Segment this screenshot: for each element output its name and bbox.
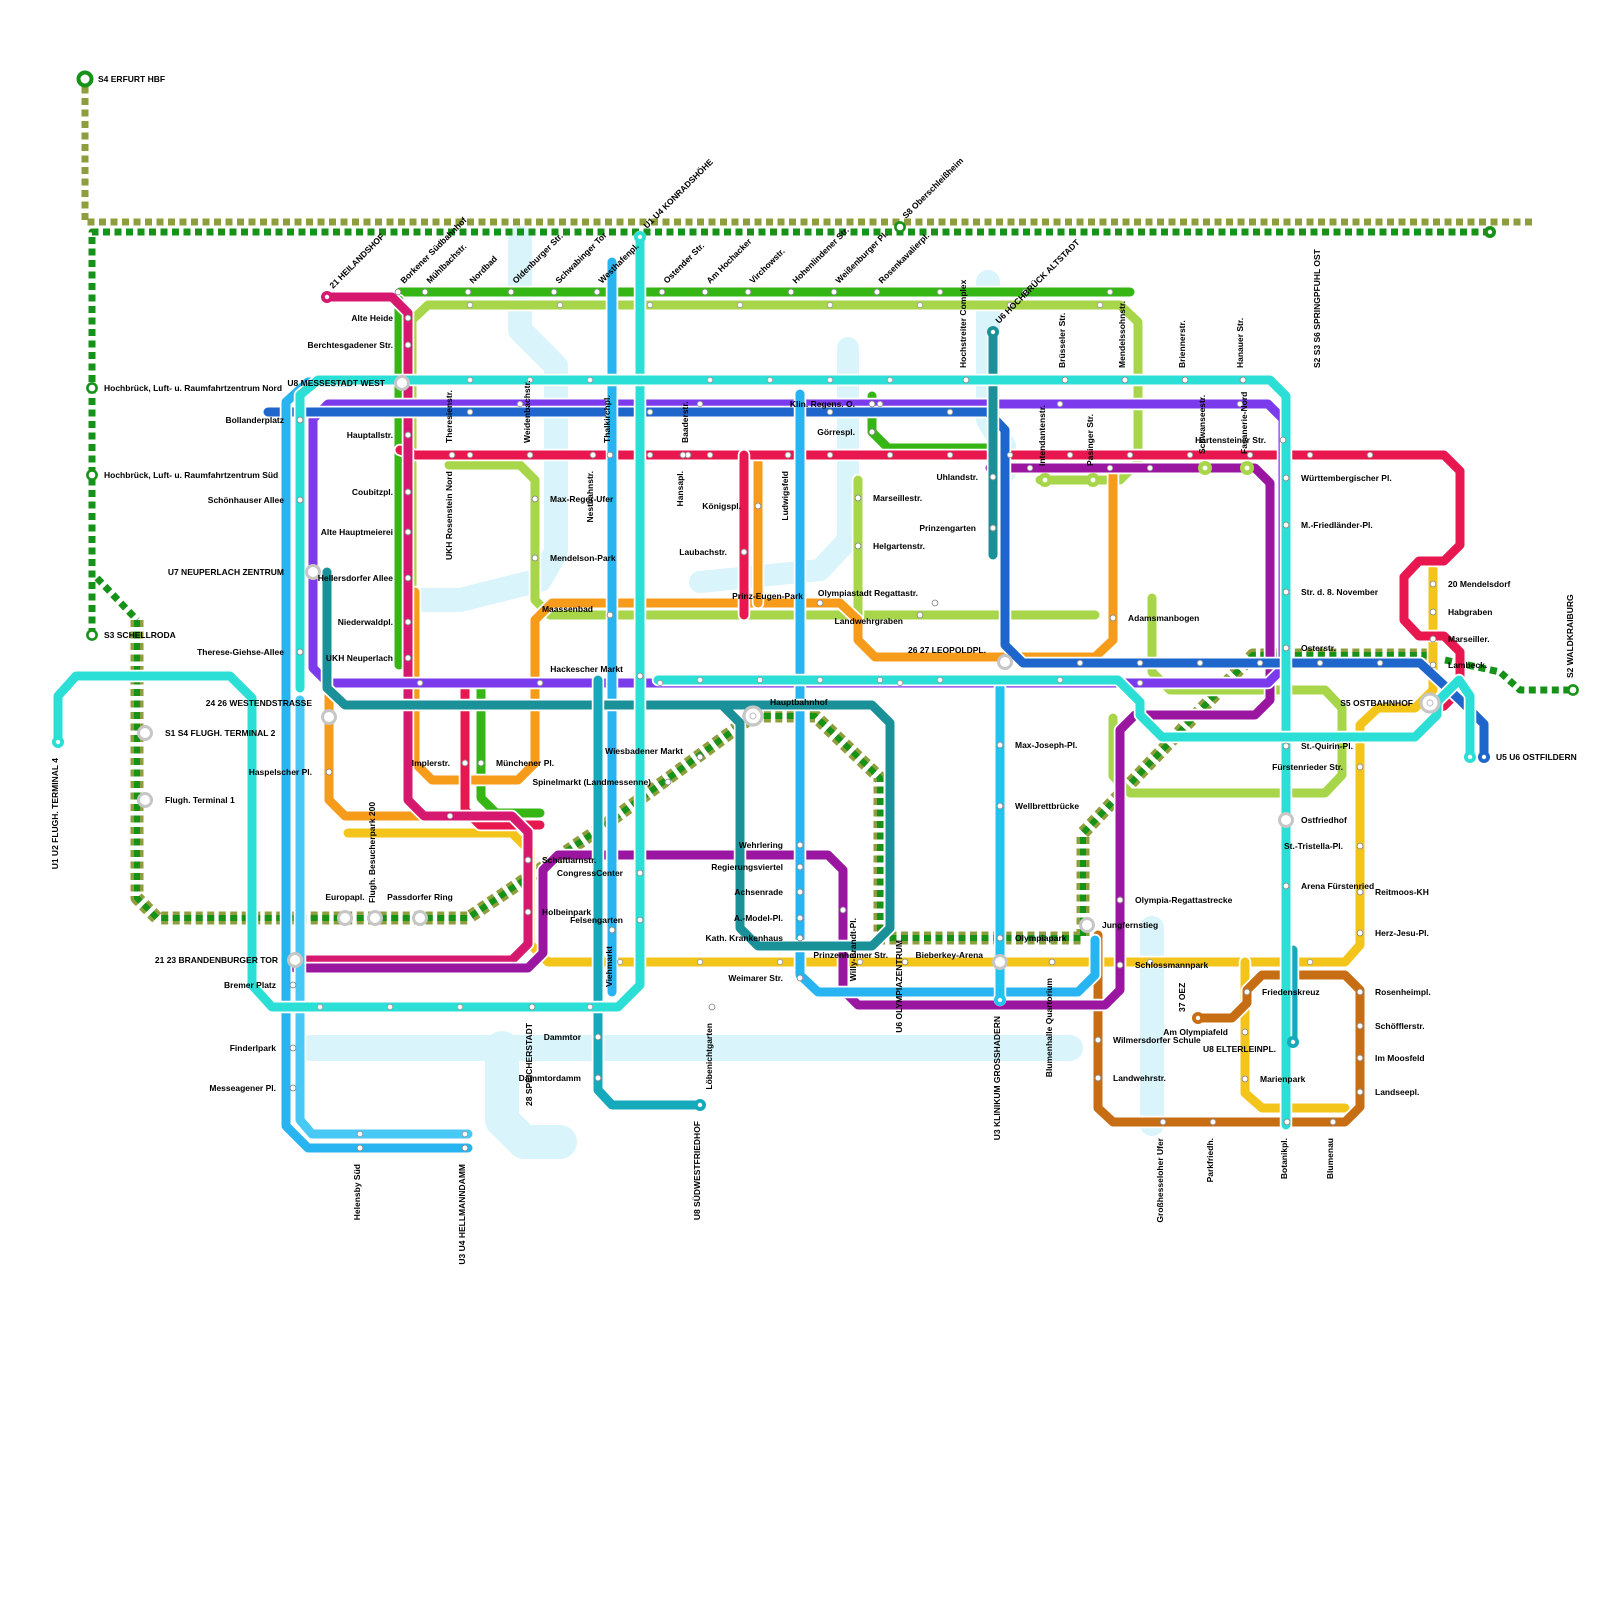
station-label: S3 SCHELLRODA xyxy=(104,630,176,640)
station-label: Helensby Süd xyxy=(352,1164,362,1220)
station-dot xyxy=(1049,959,1055,965)
interchange-ring-inner xyxy=(750,713,756,719)
station-label: Regierungsviertel xyxy=(711,862,783,872)
station-dot xyxy=(827,377,832,382)
station-label: Hansapl. xyxy=(675,471,685,506)
station-label: Briennerstr. xyxy=(1177,320,1187,368)
station-label: U8 MESSESTADT WEST xyxy=(287,378,385,388)
station-dot xyxy=(1430,609,1436,615)
station-dot xyxy=(1307,959,1312,964)
station-label: CongressCenter xyxy=(557,868,624,878)
station-dot xyxy=(937,289,942,294)
station-label: Nordbad xyxy=(467,254,499,286)
station-label: Achsenrade xyxy=(734,887,783,897)
station-label: St.-Tristella-Pl. xyxy=(1284,841,1343,851)
interchange-ring xyxy=(139,794,152,807)
station-dot xyxy=(637,673,643,679)
station-dot xyxy=(963,377,969,383)
station-dot xyxy=(405,529,411,535)
station-dot xyxy=(827,302,832,307)
terminus-marker-dot xyxy=(1203,466,1208,471)
interchange-ring xyxy=(369,912,382,925)
station-label: U3 U4 HELLMANNDAMM xyxy=(457,1164,467,1265)
station-label: Alte Hauptmeierei xyxy=(321,527,393,537)
station-dot xyxy=(697,401,702,406)
station-dot xyxy=(1283,645,1289,651)
station-label: U8 ELTERLEINPL. xyxy=(1203,1044,1276,1054)
station-dot xyxy=(1357,989,1363,995)
line-layer xyxy=(58,75,1573,1148)
station-label: U6 HOCHBRÜCK ALTSTADT xyxy=(993,237,1082,326)
station-dot xyxy=(877,401,882,406)
interchange-ring xyxy=(289,954,302,967)
station-label: Marienpark xyxy=(1260,1074,1306,1084)
station-label: Hochbrück, Luft- u. Raumfahrtzentrum Nor… xyxy=(104,383,282,393)
station-dot xyxy=(1283,475,1289,481)
station-dot xyxy=(990,474,996,480)
station-label: Messeagener Pl. xyxy=(209,1083,276,1093)
station-dot xyxy=(462,1145,468,1151)
station-dot xyxy=(607,612,613,618)
line-terminal-dot-center xyxy=(1468,755,1472,759)
interchange-ring xyxy=(139,727,152,740)
line-terminal-dot-center xyxy=(698,1103,702,1107)
station-dot xyxy=(1357,1023,1363,1029)
station-dot xyxy=(659,289,665,295)
station-dot xyxy=(1182,377,1188,383)
station-label: St.-Quirin-Pl. xyxy=(1301,741,1353,751)
station-dot xyxy=(755,503,761,509)
station-label: Bremer Platz xyxy=(224,980,276,990)
station-label: Königspl. xyxy=(702,501,741,511)
station-dot xyxy=(290,982,296,988)
station-label: Marseillestr. xyxy=(873,493,922,503)
station-dot xyxy=(557,302,562,307)
station-label: Mendelson-Park xyxy=(550,553,616,563)
station-label: 26 27 LEOPOLDPL. xyxy=(908,645,986,655)
station-dot xyxy=(395,289,401,295)
station-label: Prinz-Eugen-Park xyxy=(732,591,803,601)
station-dot xyxy=(1430,662,1436,668)
station-label: Reitmoos-KH xyxy=(1375,887,1429,897)
station-label: Flugh. Terminal 1 xyxy=(165,795,235,805)
station-dot xyxy=(607,452,613,458)
station-dot xyxy=(697,959,702,964)
station-dot xyxy=(1127,452,1132,457)
station-dot xyxy=(290,1045,296,1051)
station-label: Baaderstr. xyxy=(680,401,690,443)
station-label: 24 26 WESTENDSTRASSE xyxy=(206,698,313,708)
station-dot xyxy=(537,680,542,685)
station-dot xyxy=(1117,962,1123,968)
station-dot xyxy=(997,935,1003,941)
station-dot xyxy=(1160,1119,1166,1125)
station-dot xyxy=(462,760,468,766)
station-label: Bieberkey-Arena xyxy=(915,950,983,960)
station-dot xyxy=(637,870,643,876)
station-dot xyxy=(797,975,803,981)
station-dot xyxy=(529,1004,535,1010)
station-label: Am Olympiafeld xyxy=(1163,1027,1228,1037)
station-dot xyxy=(297,649,303,655)
station-label: Friedenskreuz xyxy=(1262,987,1320,997)
station-label: Niederwaldpl. xyxy=(338,617,393,627)
station-label: Marseiller. xyxy=(1448,634,1490,644)
station-label: S1 S4 FLUGH. TERMINAL 2 xyxy=(165,728,276,738)
station-dot xyxy=(457,1004,462,1009)
station-dot xyxy=(1244,989,1250,995)
station-label: S5 OSTBAHNHOF xyxy=(1340,698,1413,708)
station-dot xyxy=(609,927,615,933)
station-dot xyxy=(1095,1075,1101,1081)
station-label: Habgraben xyxy=(1448,607,1492,617)
station-dot xyxy=(1317,660,1322,665)
station-label: Pasinger Str. xyxy=(1085,414,1095,466)
station-dot xyxy=(917,612,923,618)
station-dot xyxy=(767,377,772,382)
station-dot xyxy=(290,1085,296,1091)
station-label: UKH Neuperlach xyxy=(326,653,393,663)
terminus-marker-dot xyxy=(1091,478,1096,483)
station-dot xyxy=(897,680,902,685)
station-label: Virchowstr. xyxy=(747,246,786,285)
station-label: Ostfriedhof xyxy=(1301,815,1347,825)
interchange-ring xyxy=(414,912,427,925)
sbahn-station-ring xyxy=(1568,685,1577,694)
station-dot xyxy=(937,677,942,682)
sbahn-station-ring xyxy=(895,222,904,231)
station-label: S4 ERFURT HBF xyxy=(98,74,165,84)
station-label: Hochbrück, Luft- u. Raumfahrtzentrum Süd xyxy=(104,470,278,480)
station-label: Schönhauser Allee xyxy=(208,495,284,505)
interchange-ring xyxy=(999,656,1012,669)
station-dot xyxy=(525,909,531,915)
station-label: Helgartenstr. xyxy=(873,541,925,551)
station-dot xyxy=(1283,522,1289,528)
station-label: Hackescher Markt xyxy=(550,664,623,674)
station-dot xyxy=(947,452,952,457)
station-label: Kath. Krankenhaus xyxy=(706,933,784,943)
station-dot xyxy=(777,959,782,964)
station-dot xyxy=(737,302,742,307)
station-dot xyxy=(1137,680,1142,685)
station-dot xyxy=(467,302,472,307)
station-label: Hochstreiter Complex xyxy=(958,279,968,368)
station-dot xyxy=(788,289,794,295)
line-terminal-dot-center xyxy=(991,330,995,334)
station-label: Osterstr. xyxy=(1301,643,1336,653)
interchange-ring xyxy=(339,912,352,925)
interchange-ring xyxy=(323,711,336,724)
station-label: Hauptallstr. xyxy=(347,430,393,440)
station-label: Jungfernstieg xyxy=(1102,920,1158,930)
station-dot xyxy=(326,769,332,775)
station-label: Weidenbachstr. xyxy=(522,380,532,443)
station-label: Coubitzpl. xyxy=(352,487,393,497)
station-label: UKH Rosenstein Nord xyxy=(444,471,454,560)
station-label: 28 SPEICHERSTADT xyxy=(524,1022,534,1106)
station-dot xyxy=(917,302,922,307)
station-dot xyxy=(405,619,411,625)
line-terminal-dot-center xyxy=(1196,1016,1200,1020)
station-dot xyxy=(817,600,823,606)
station-label: Bollanderplatz xyxy=(225,415,284,425)
station-label: Theresienstr. xyxy=(444,390,454,443)
station-label: M.-Friedländer-Pl. xyxy=(1301,520,1373,530)
station-label: U8 SÜDWESTFRIEDHOF xyxy=(692,1121,702,1220)
station-label: Weimarer Str. xyxy=(728,973,783,983)
station-dot xyxy=(467,452,472,457)
station-dot xyxy=(462,1131,467,1136)
station-dot xyxy=(1430,581,1436,587)
station-dot xyxy=(527,452,533,458)
station-dot xyxy=(697,754,703,760)
station-dot xyxy=(707,377,712,382)
station-dot xyxy=(1357,930,1363,936)
station-dot xyxy=(855,543,861,549)
station-dot xyxy=(1117,897,1123,903)
station-dot xyxy=(1357,1055,1363,1061)
station-dot xyxy=(637,917,643,923)
station-dot xyxy=(478,760,484,766)
terminus-marker-dot xyxy=(1043,478,1048,483)
station-dot xyxy=(1197,660,1202,665)
station-dot xyxy=(647,452,652,457)
station-dot xyxy=(1077,660,1082,665)
station-label: Landseepl. xyxy=(1375,1087,1419,1097)
interchange-ring xyxy=(994,956,1007,969)
station-label: Hellersdorfer Allee xyxy=(318,573,394,583)
station-dot xyxy=(1187,452,1192,457)
station-dot xyxy=(1242,1029,1248,1035)
station-dot xyxy=(405,489,411,495)
station-dot xyxy=(405,315,411,321)
line-terminal-dot-center xyxy=(325,295,329,299)
station-dot xyxy=(874,289,880,295)
station-label: Klin. Regens. O. xyxy=(790,399,855,409)
station-label: Alte Heide xyxy=(351,313,393,323)
interchange-ring xyxy=(1081,919,1094,932)
station-dot xyxy=(297,497,303,503)
station-dot xyxy=(467,409,472,414)
line-terminal-dot-center xyxy=(998,998,1002,1002)
station-dot xyxy=(997,742,1003,748)
station-dot xyxy=(417,680,422,685)
station-dot xyxy=(594,289,600,295)
station-dot xyxy=(680,452,686,458)
station-dot xyxy=(997,803,1003,809)
station-dot xyxy=(551,289,557,295)
station-dot xyxy=(532,496,538,502)
station-dot xyxy=(1280,437,1286,443)
station-dot xyxy=(1057,401,1062,406)
station-label: Haspelscher Pl. xyxy=(249,767,312,777)
station-dot xyxy=(465,289,471,295)
station-label: Großhesseloher Ufer xyxy=(1155,1137,1165,1222)
station-label: Dammtor xyxy=(544,1032,582,1042)
station-dot xyxy=(869,401,875,407)
line-s-branch xyxy=(97,578,137,620)
station-dot xyxy=(1283,589,1289,595)
station-label: Arena Fürstenried xyxy=(1301,881,1374,891)
interchange-ring xyxy=(396,377,409,390)
station-dot xyxy=(855,495,861,501)
station-dot xyxy=(297,417,303,423)
station-label: Schwanseestr. xyxy=(1197,395,1207,454)
station-dot xyxy=(405,575,411,581)
line-terminal-dot-center xyxy=(638,235,642,239)
station-dot xyxy=(1095,1037,1101,1043)
line-s4-olive xyxy=(85,75,1535,222)
station-dot xyxy=(467,377,472,382)
station-dot xyxy=(1240,377,1246,383)
station-label: Parkfriedh. xyxy=(1205,1138,1215,1182)
station-label: Viehmarkt xyxy=(604,946,614,987)
station-label: 20 Mendelsdorf xyxy=(1448,579,1511,589)
transit-map-canvas: S4 ERFURT HBFHochbrück, Luft- u. Raumfah… xyxy=(0,0,1600,1600)
station-dot xyxy=(657,680,662,685)
station-label: Max-Reger-Ufer xyxy=(550,494,614,504)
station-label: Schäftlarnstr. xyxy=(542,855,596,865)
station-dot xyxy=(1027,465,1032,470)
station-dot xyxy=(1067,452,1072,457)
station-dot xyxy=(947,409,952,414)
station-label: Schlossmannpark xyxy=(1135,960,1208,970)
station-dot xyxy=(1357,843,1363,849)
station-dot xyxy=(1307,452,1312,457)
station-label: 37 OEZ xyxy=(1177,983,1187,1012)
station-label: Ludwigsfeld xyxy=(780,471,790,521)
station-dot xyxy=(1377,660,1382,665)
station-dot xyxy=(1430,636,1436,642)
station-dot xyxy=(1057,677,1062,682)
station-dot xyxy=(617,959,622,964)
station-dot xyxy=(1242,1076,1248,1082)
station-dot xyxy=(587,1004,592,1009)
station-label: Herz-Jesu-Pl. xyxy=(1375,928,1429,938)
station-dot xyxy=(647,302,652,307)
station-dot xyxy=(1147,465,1152,470)
station-dot xyxy=(1330,1119,1336,1125)
interchange-ring-inner xyxy=(1427,700,1433,706)
station-dot xyxy=(357,1145,363,1151)
station-label: U7 NEUPERLACH ZENTRUM xyxy=(168,567,284,577)
sbahn-terminal-ring xyxy=(79,73,92,86)
station-dot xyxy=(697,677,702,682)
interchange-ring xyxy=(1280,814,1293,827)
station-dot xyxy=(357,1131,362,1136)
station-label: Maassenbad xyxy=(542,604,593,614)
station-dot xyxy=(587,377,592,382)
station-dot xyxy=(449,452,455,458)
line-terminal-dot-center xyxy=(56,740,60,744)
station-dot xyxy=(405,655,411,661)
station-dot xyxy=(932,600,938,606)
station-dot xyxy=(887,452,892,457)
station-label: Landwehrstr. xyxy=(1113,1073,1166,1083)
station-dot xyxy=(797,864,803,870)
station-dot xyxy=(831,289,837,295)
station-label: Olympiapark xyxy=(1015,933,1067,943)
station-dot xyxy=(745,289,751,295)
station-dot xyxy=(595,1034,601,1040)
station-label: Passdorfer Ring xyxy=(387,892,453,902)
station-label: Dammtordamm xyxy=(519,1073,582,1083)
station-dot xyxy=(877,677,882,682)
station-label: Fürstenrieder Str. xyxy=(1272,762,1343,772)
station-label: Therese-Giehse-Allee xyxy=(197,647,284,657)
station-label: U3 KLINIKUM GROSSHADERN xyxy=(992,1016,1002,1140)
station-dot xyxy=(532,555,538,561)
terminus-marker-dot xyxy=(1245,466,1250,471)
station-dot xyxy=(1062,377,1068,383)
station-label: Berchtesgadener Str. xyxy=(307,340,393,350)
station-dot xyxy=(840,907,846,913)
station-dot xyxy=(422,289,428,295)
station-label: Wellbrettbrücke xyxy=(1015,801,1079,811)
station-label: Württembergischer Pl. xyxy=(1301,473,1392,483)
station-dot xyxy=(447,813,452,818)
station-dot xyxy=(387,1004,392,1009)
station-label: S8 Oberschleißheim xyxy=(900,155,965,220)
station-label: Thalkirchpl. xyxy=(602,395,612,443)
station-label: Finderlpark xyxy=(230,1043,277,1053)
station-dot xyxy=(1357,1089,1363,1095)
station-dot xyxy=(317,1004,322,1009)
station-label: 21 HEILANDSHOF xyxy=(327,232,386,291)
station-label: A.-Model-Pl. xyxy=(734,913,783,923)
station-dot xyxy=(1283,743,1289,749)
station-label: S2 S3 S6 SPRINGPFUHL OST xyxy=(1312,248,1322,368)
station-dot xyxy=(709,1004,715,1010)
station-dot xyxy=(647,409,652,414)
station-label: Adamsmanbogen xyxy=(1128,613,1199,623)
station-dot xyxy=(1283,883,1289,889)
station-dot xyxy=(1137,660,1142,665)
station-label-layer: S4 ERFURT HBFHochbrück, Luft- u. Raumfah… xyxy=(50,74,1577,1265)
line-terminal-dot-center xyxy=(1482,755,1486,759)
station-label: Europapl. xyxy=(325,892,364,902)
station-label: Hauptbahnhof xyxy=(770,697,828,707)
line-terminal-dot-center xyxy=(1291,1040,1295,1044)
station-label: 21 23 BRANDENBURGER TOR xyxy=(155,955,278,965)
station-label: Görrespl. xyxy=(817,427,855,437)
station-dot xyxy=(405,342,411,348)
line-terminal-dot-center xyxy=(1488,230,1492,234)
station-label: Lambeck. xyxy=(1448,660,1487,670)
station-label: Laubachstr. xyxy=(679,547,727,557)
station-dot xyxy=(757,677,762,682)
station-label: Im Moosfeld xyxy=(1375,1053,1425,1063)
station-dot xyxy=(797,842,803,848)
transit-map: S4 ERFURT HBFHochbrück, Luft- u. Raumfah… xyxy=(0,0,1600,1600)
station-dot xyxy=(797,935,803,941)
station-label: Olympia-Regattastrecke xyxy=(1135,895,1233,905)
station-label: Löbenichtgarten xyxy=(704,1023,714,1090)
station-label: Rosenheimpl. xyxy=(1375,987,1431,997)
station-dot xyxy=(595,1075,601,1081)
station-dot xyxy=(887,377,892,382)
station-label: Implerstr. xyxy=(412,758,450,768)
station-label: Olympiastadt Regattastr. xyxy=(818,588,918,598)
station-label: Ostender Str. xyxy=(661,241,706,286)
station-dot xyxy=(1107,289,1112,294)
station-label: Spinelmarkt (Landmessenne) xyxy=(532,777,651,787)
station-label: Uhlandstr. xyxy=(936,472,978,482)
station-label: Landwehrgraben xyxy=(835,616,903,626)
station-dot xyxy=(1284,1119,1290,1125)
station-label: Brüsseler Str. xyxy=(1057,313,1067,368)
